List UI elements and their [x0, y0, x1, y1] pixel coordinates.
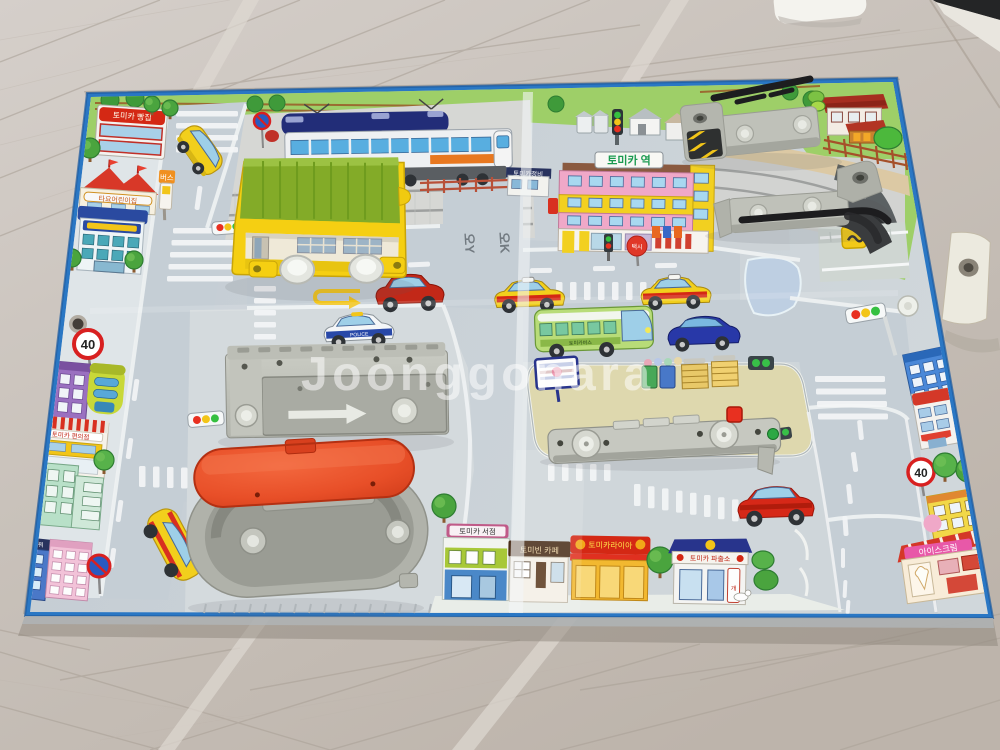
- svg-text:40: 40: [914, 466, 928, 480]
- svg-text:Joonggonara: Joonggonara: [301, 348, 655, 401]
- svg-text:토미카 서점: 토미카 서점: [459, 526, 496, 537]
- svg-text:택시: 택시: [631, 244, 642, 251]
- svg-text:오Y: 오Y: [461, 233, 477, 255]
- svg-text:버스: 버스: [160, 172, 174, 183]
- svg-text:토미카 역: 토미카 역: [607, 153, 651, 167]
- svg-text:오K: 오K: [496, 232, 512, 255]
- svg-text:토미카라이아: 토미카라이아: [588, 540, 633, 551]
- svg-text:POLICE: POLICE: [350, 332, 369, 339]
- svg-text:개: 개: [731, 584, 737, 592]
- svg-text:토미카버스: 토미카버스: [569, 339, 593, 347]
- svg-text:40: 40: [81, 337, 95, 352]
